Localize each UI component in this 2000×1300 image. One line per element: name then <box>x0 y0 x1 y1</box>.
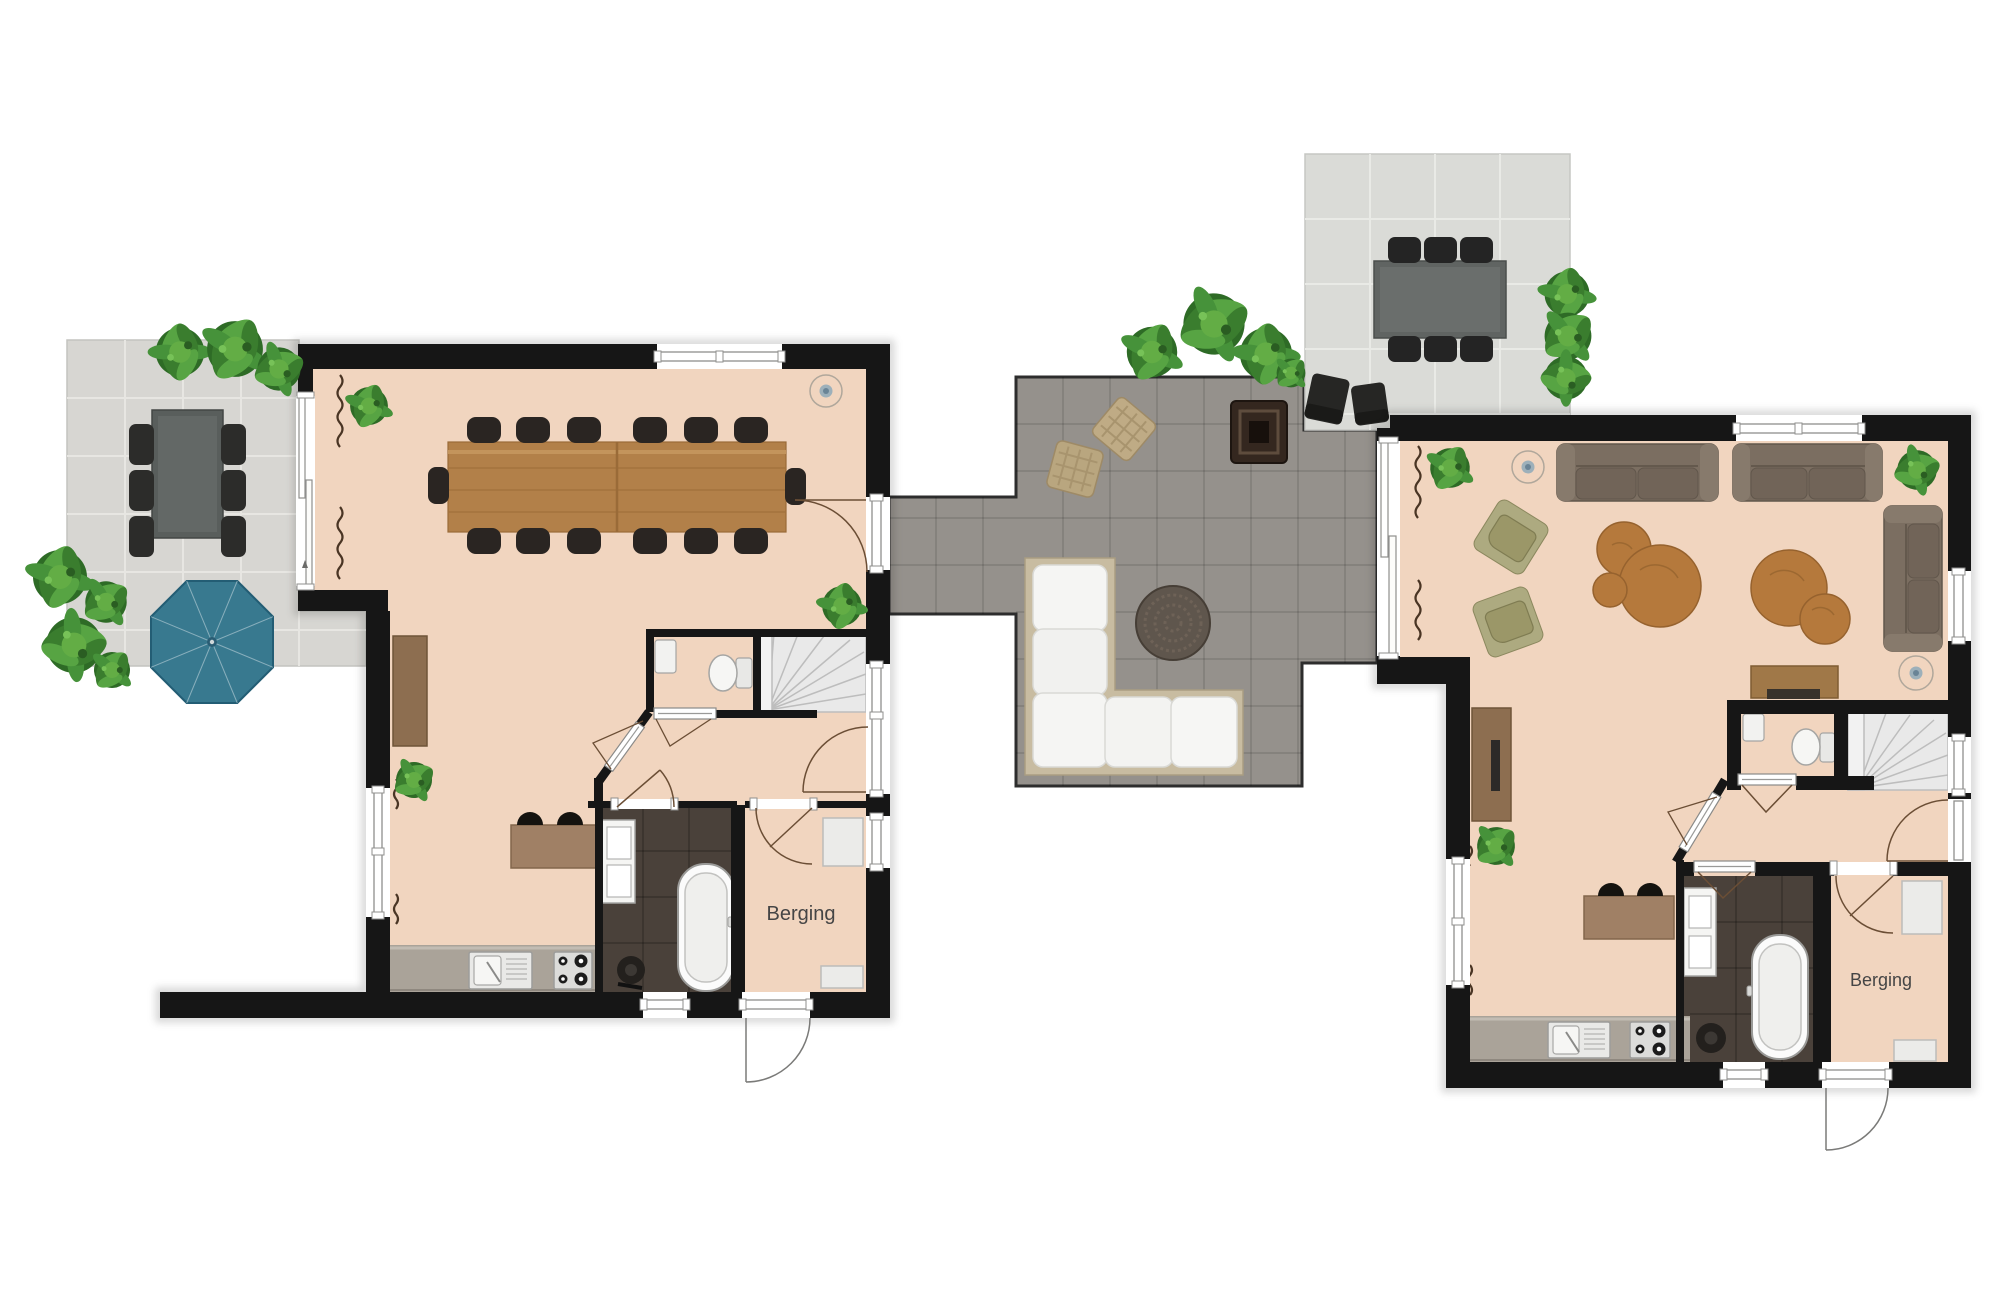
svg-text:Berging: Berging <box>1850 970 1912 990</box>
svg-text:Berging: Berging <box>767 903 836 925</box>
